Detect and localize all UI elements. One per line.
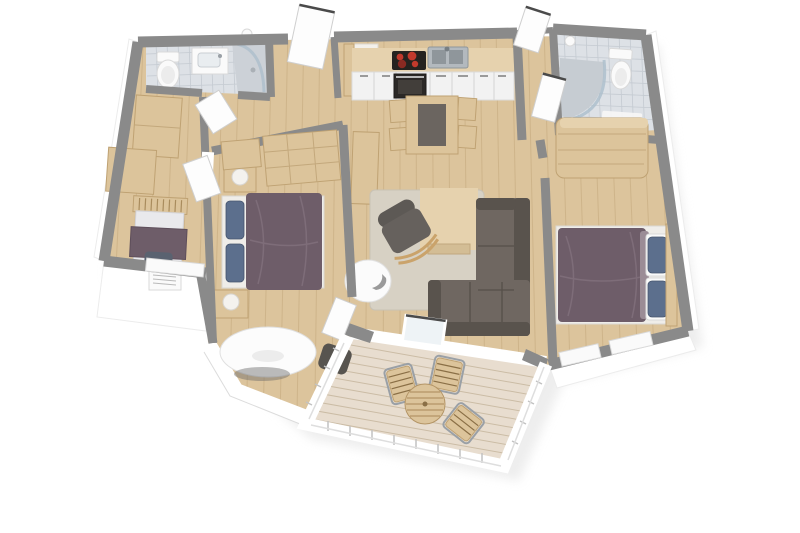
burner-1 bbox=[397, 54, 404, 61]
shower-head-2 bbox=[565, 36, 575, 46]
pillow-left-2 bbox=[226, 244, 244, 282]
floor-plan-svg bbox=[0, 0, 800, 533]
outer-wall-top-kitchen bbox=[334, 33, 517, 37]
lamp-bottom bbox=[223, 294, 239, 310]
vanity-sink bbox=[198, 53, 220, 67]
sink-bowl-1 bbox=[432, 50, 446, 64]
pillow-right-2 bbox=[648, 281, 667, 317]
pillow-right-1 bbox=[648, 237, 667, 273]
entry-kitchen-stub-wall bbox=[334, 37, 338, 98]
bath1-right-wall bbox=[269, 39, 271, 97]
coffee-table bbox=[420, 188, 478, 250]
outer-wall-bath2-top bbox=[553, 29, 646, 35]
kitchen bbox=[344, 44, 514, 100]
toilet-seat bbox=[161, 66, 175, 84]
oval-table-base bbox=[252, 350, 284, 362]
bath1-bottom-wall-right bbox=[238, 95, 270, 97]
oven-window bbox=[398, 80, 422, 94]
lamp-top bbox=[232, 169, 248, 185]
terrace-table-hole bbox=[423, 402, 428, 407]
wardrobe-small bbox=[221, 139, 261, 170]
dining-chair-3 bbox=[457, 97, 476, 120]
sliding-door bbox=[402, 315, 445, 346]
burner-3 bbox=[398, 60, 406, 68]
dining-chair-4 bbox=[457, 125, 476, 148]
dining-table-runner bbox=[418, 104, 446, 146]
wardrobe-right-top bbox=[560, 118, 648, 128]
bedroom-right-door-stub bbox=[540, 140, 543, 158]
wardrobe-large bbox=[263, 130, 341, 186]
toilet2-tank bbox=[609, 48, 633, 60]
vanity-faucet bbox=[218, 54, 222, 58]
burner-2 bbox=[408, 52, 417, 61]
burner-4 bbox=[412, 61, 418, 67]
sink-bowl-2 bbox=[449, 50, 463, 64]
shower-drain bbox=[251, 68, 256, 73]
pillow-left-1 bbox=[226, 201, 244, 239]
bath1-bottom-wall-left bbox=[146, 89, 202, 93]
sofa-top-armrest bbox=[476, 198, 516, 210]
table-chair-shadow bbox=[234, 367, 290, 381]
bedroom-right-wardrobe bbox=[556, 118, 648, 178]
bedroom-right bbox=[556, 224, 677, 326]
kitchen-hallway-partition bbox=[517, 34, 522, 140]
sink-faucet bbox=[445, 47, 450, 52]
floor-plan-canvas bbox=[0, 0, 800, 533]
